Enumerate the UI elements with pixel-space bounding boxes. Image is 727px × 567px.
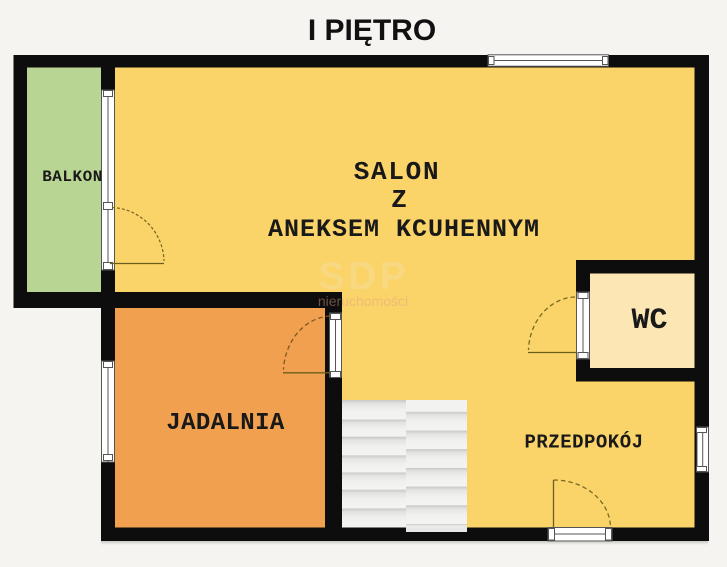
svg-text:JADALNIA: JADALNIA <box>166 410 285 437</box>
svg-text:ANEKSEM KCUHENNYM: ANEKSEM KCUHENNYM <box>268 215 540 244</box>
svg-text:nieruchomości: nieruchomości <box>318 293 408 309</box>
svg-text:SDP: SDP <box>319 255 410 298</box>
svg-text:SALON: SALON <box>354 157 441 187</box>
svg-text:PRZEDPOKÓJ: PRZEDPOKÓJ <box>524 432 643 454</box>
svg-text:I PIĘTRO: I PIĘTRO <box>308 14 436 47</box>
svg-text:WC: WC <box>631 304 667 338</box>
svg-text:Z: Z <box>391 185 407 215</box>
svg-text:BALKON: BALKON <box>42 168 103 186</box>
